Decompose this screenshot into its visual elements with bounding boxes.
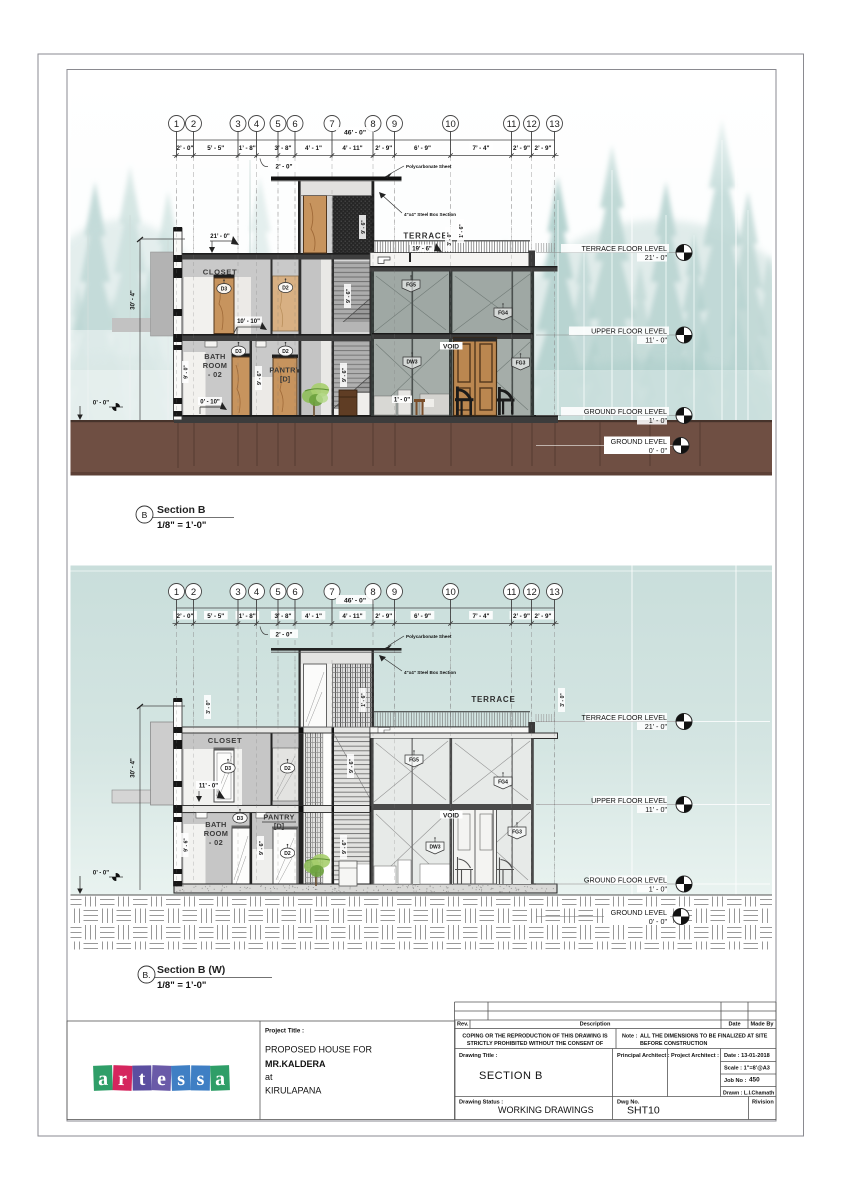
svg-text:Drawing Status :: Drawing Status : — [459, 1100, 503, 1106]
svg-text:4"x4" Steel Box Section: 4"x4" Steel Box Section — [404, 670, 456, 675]
svg-text:Project Title :: Project Title : — [265, 1028, 304, 1035]
svg-text:2’ - 0": 2’ - 0" — [177, 613, 194, 620]
svg-text:Drawing Title :: Drawing Title : — [459, 1053, 498, 1059]
svg-text:Drawn : L.I.Chamath: Drawn : L.I.Chamath — [723, 1091, 774, 1097]
svg-text:10: 10 — [445, 119, 456, 130]
svg-text:4: 4 — [254, 587, 259, 598]
svg-text:1’ - 0": 1’ - 0" — [649, 416, 668, 425]
svg-text:1: 1 — [174, 119, 179, 130]
svg-text:CLOSET: CLOSET — [208, 736, 242, 745]
svg-text:FG3: FG3 — [512, 830, 522, 836]
svg-text:DW3: DW3 — [406, 360, 417, 366]
svg-text:2’ - 9": 2’ - 9" — [375, 145, 392, 152]
svg-text:5’ - 5": 5’ - 5" — [207, 613, 224, 620]
svg-text:9: 9 — [392, 587, 397, 598]
svg-text:Section B (W): Section B (W) — [157, 964, 225, 976]
svg-text:GROUND LEVEL: GROUND LEVEL — [611, 908, 667, 917]
svg-text:Note :: Note : — [622, 1034, 637, 1040]
svg-text:9: 9 — [392, 119, 397, 130]
svg-text:2’ - 0": 2’ - 0" — [177, 145, 194, 152]
svg-text:4’ - 11": 4’ - 11" — [342, 613, 362, 620]
svg-text:4’ - 1": 4’ - 1" — [305, 613, 322, 620]
svg-text:t: t — [138, 1068, 145, 1090]
svg-text:ROOM: ROOM — [203, 361, 228, 370]
svg-text:B.: B. — [142, 970, 150, 980]
svg-text:2’ - 9": 2’ - 9" — [513, 145, 530, 152]
svg-text:46’ - 0": 46’ - 0" — [344, 130, 366, 137]
svg-text:Description: Description — [580, 1022, 611, 1028]
svg-text:- 02: - 02 — [208, 370, 222, 379]
svg-text:BATH: BATH — [205, 820, 227, 829]
svg-text:Made By: Made By — [750, 1022, 774, 1028]
svg-text:2: 2 — [191, 587, 196, 598]
svg-text:r: r — [118, 1068, 128, 1090]
svg-text:11’ - 0": 11’ - 0" — [645, 336, 667, 345]
svg-text:5: 5 — [275, 119, 280, 130]
svg-text:11: 11 — [507, 119, 517, 130]
svg-text:12: 12 — [526, 587, 537, 598]
svg-text:DW3: DW3 — [429, 845, 440, 851]
svg-text:FG3: FG3 — [516, 361, 526, 367]
svg-text:SECTION B: SECTION B — [479, 1070, 543, 1082]
svg-text:5: 5 — [275, 587, 280, 598]
svg-text:1’ - 8": 1’ - 8" — [239, 613, 256, 620]
svg-text:SHT10: SHT10 — [627, 1105, 660, 1117]
svg-text:at: at — [265, 1072, 273, 1082]
svg-text:PROPOSED HOUSE FOR: PROPOSED HOUSE FOR — [265, 1045, 373, 1055]
svg-text:3: 3 — [235, 587, 240, 598]
svg-text:10’ - 10": 10’ - 10" — [237, 319, 260, 325]
svg-text:11: 11 — [507, 587, 517, 598]
svg-text:GROUND FLOOR LEVEL: GROUND FLOOR LEVEL — [584, 876, 667, 885]
svg-text:0’ - 10": 0’ - 10" — [200, 400, 220, 406]
svg-text:0’ - 0": 0’ - 0" — [93, 871, 109, 877]
svg-text:TERRACE: TERRACE — [403, 232, 447, 241]
svg-text:ALL THE DIMENSIONS TO BE FINAL: ALL THE DIMENSIONS TO BE FINALIZED AT SI… — [640, 1034, 768, 1040]
svg-text:11’ - 0": 11’ - 0" — [645, 805, 667, 814]
svg-text:3’ - 0": 3’ - 0" — [206, 700, 212, 714]
svg-text:7’ - 4": 7’ - 4" — [473, 145, 490, 152]
svg-text:13: 13 — [549, 119, 560, 130]
svg-text:30’ - 4": 30’ - 4" — [131, 290, 137, 310]
svg-text:CLOSET: CLOSET — [203, 268, 237, 277]
svg-text:9’ - 6": 9’ - 6" — [342, 367, 348, 382]
svg-text:1’ - 6": 1’ - 6" — [459, 224, 465, 238]
svg-text:4’ - 1": 4’ - 1" — [305, 145, 322, 152]
svg-text:3’ - 0": 3’ - 0" — [447, 232, 453, 246]
svg-text:30’ - 4": 30’ - 4" — [131, 758, 137, 778]
svg-text:UPPER FLOOR LEVEL: UPPER FLOOR LEVEL — [591, 796, 667, 805]
svg-text:3’ - 0": 3’ - 0" — [560, 693, 566, 707]
svg-text:s: s — [177, 1068, 186, 1090]
svg-text:5’ - 5": 5’ - 5" — [207, 145, 224, 152]
svg-text:Scale : 1"=8’@A3: Scale : 1"=8’@A3 — [724, 1066, 770, 1072]
svg-text:21’ - 0": 21’ - 0" — [645, 722, 668, 731]
svg-text:6’ - 9": 6’ - 9" — [414, 613, 431, 620]
svg-text:9’ - 6": 9’ - 6" — [259, 840, 265, 855]
svg-text:B: B — [142, 510, 148, 520]
svg-text:9’ - 6": 9’ - 6" — [257, 370, 263, 385]
svg-text:4: 4 — [254, 119, 259, 130]
svg-text:9’ - 6": 9’ - 6" — [361, 220, 367, 234]
svg-text:0’ - 0": 0’ - 0" — [649, 917, 668, 926]
svg-text:TERRACE FLOOR LEVEL: TERRACE FLOOR LEVEL — [582, 244, 667, 253]
svg-text:s: s — [196, 1068, 204, 1090]
svg-text:7’ - 4": 7’ - 4" — [473, 613, 490, 620]
svg-text:3’ - 8": 3’ - 8" — [275, 613, 292, 620]
svg-text:Date: Date — [728, 1022, 740, 1028]
svg-text:GROUND LEVEL: GROUND LEVEL — [611, 437, 667, 446]
svg-text:9’ - 6": 9’ - 6" — [346, 288, 352, 303]
svg-text:1/8" = 1’-0": 1/8" = 1’-0" — [157, 520, 206, 531]
svg-text:MR.KALDERA: MR.KALDERA — [265, 1059, 326, 1069]
svg-text:1’ - 0": 1’ - 0" — [649, 885, 668, 894]
svg-text:D3: D3 — [225, 766, 232, 772]
svg-text:7: 7 — [329, 119, 334, 130]
svg-text:2’ - 9": 2’ - 9" — [535, 145, 552, 152]
svg-text:0’ - 0": 0’ - 0" — [93, 401, 109, 407]
svg-text:a: a — [98, 1068, 109, 1090]
svg-text:[D]: [D] — [280, 375, 291, 384]
svg-text:4’ - 11": 4’ - 11" — [342, 145, 362, 152]
svg-text:TERRACE: TERRACE — [471, 695, 515, 704]
svg-text:D2: D2 — [284, 851, 291, 857]
svg-text:D2: D2 — [282, 286, 289, 292]
svg-text:9’ - 6": 9’ - 6" — [184, 838, 190, 852]
svg-text:FG4: FG4 — [498, 311, 508, 317]
svg-text:11’ - 0": 11’ - 0" — [199, 784, 218, 790]
svg-text:19’ - 6": 19’ - 6" — [412, 247, 432, 253]
svg-text:2’ - 9": 2’ - 9" — [513, 613, 530, 620]
svg-text:12: 12 — [526, 119, 537, 130]
svg-text:1’ - 6": 1’ - 6" — [361, 693, 367, 707]
svg-text:[D]: [D] — [274, 822, 285, 831]
svg-text:2’ - 9": 2’ - 9" — [375, 613, 392, 620]
svg-text:FG5: FG5 — [406, 283, 416, 289]
svg-text:e: e — [157, 1068, 167, 1090]
svg-text:KIRULAPANA: KIRULAPANA — [265, 1086, 321, 1096]
svg-text:2: 2 — [191, 119, 196, 130]
svg-text:21’ - 0": 21’ - 0" — [645, 253, 668, 262]
svg-text:TERRACE FLOOR LEVEL: TERRACE FLOOR LEVEL — [582, 713, 667, 722]
svg-text:WORKING DRAWINGS: WORKING DRAWINGS — [498, 1105, 594, 1115]
svg-text:Section B: Section B — [157, 504, 206, 516]
svg-text:VOID: VOID — [443, 344, 459, 351]
svg-text:21’ - 0": 21’ - 0" — [210, 234, 230, 240]
svg-text:D3: D3 — [237, 816, 244, 822]
svg-text:Project Architect :: Project Architect : — [671, 1053, 719, 1059]
svg-text:13: 13 — [549, 587, 560, 598]
svg-text:D2: D2 — [284, 766, 291, 772]
svg-text:BATH: BATH — [204, 352, 226, 361]
svg-text:9’ - 0": 9’ - 0" — [184, 365, 190, 379]
svg-text:COPING OR THE REPRODUCTION OF: COPING OR THE REPRODUCTION OF THIS DRAWI… — [462, 1034, 608, 1040]
svg-text:2’ - 9": 2’ - 9" — [535, 613, 552, 620]
svg-text:VOID: VOID — [443, 813, 459, 820]
svg-text:1’ - 8": 1’ - 8" — [239, 145, 256, 152]
svg-text:GROUND FLOOR LEVEL: GROUND FLOOR LEVEL — [584, 407, 667, 416]
svg-text:D3: D3 — [235, 349, 242, 355]
svg-text:2’ - 0": 2’ - 0" — [276, 164, 293, 171]
svg-text:0’ - 0": 0’ - 0" — [649, 446, 668, 455]
svg-text:9’ - 6": 9’ - 6" — [342, 839, 348, 854]
svg-text:Job No :: Job No : — [724, 1078, 747, 1084]
svg-text:- 02: - 02 — [209, 838, 223, 847]
svg-text:1’ - 0": 1’ - 0" — [394, 398, 410, 404]
svg-text:2’ - 0": 2’ - 0" — [276, 632, 293, 639]
svg-text:7: 7 — [329, 587, 334, 598]
svg-text:BEFORE CONSTRUCTION: BEFORE CONSTRUCTION — [640, 1041, 707, 1047]
svg-text:STRICTLY PROHIBITED WITHOUT TH: STRICTLY PROHIBITED WITHOUT THE CONSENT … — [467, 1041, 604, 1047]
svg-text:6: 6 — [292, 587, 297, 598]
svg-text:3: 3 — [235, 119, 240, 130]
svg-text:Date : 13-01-2018: Date : 13-01-2018 — [724, 1053, 770, 1059]
svg-text:4"x4" Steel Box Section: 4"x4" Steel Box Section — [404, 212, 456, 217]
svg-text:10: 10 — [445, 587, 456, 598]
svg-text:1: 1 — [174, 587, 179, 598]
svg-text:Principal Architect :: Principal Architect : — [617, 1053, 670, 1059]
svg-text:3’ - 8": 3’ - 8" — [275, 145, 292, 152]
svg-text:UPPER FLOOR LEVEL: UPPER FLOOR LEVEL — [591, 327, 667, 336]
svg-text:Rev.: Rev. — [457, 1022, 469, 1028]
svg-text:PANTRY: PANTRY — [263, 813, 294, 822]
svg-text:450: 450 — [749, 1077, 760, 1084]
svg-text:D3: D3 — [221, 287, 228, 293]
svg-text:6’ - 9": 6’ - 9" — [414, 145, 431, 152]
svg-text:PANTRY: PANTRY — [269, 366, 300, 375]
svg-text:ROOM: ROOM — [204, 829, 229, 838]
svg-text:D2: D2 — [282, 349, 289, 355]
svg-text:Polycarbonate Sheet: Polycarbonate Sheet — [406, 634, 452, 639]
svg-text:FG5: FG5 — [409, 758, 419, 764]
svg-text:Polycarbonate Sheet: Polycarbonate Sheet — [406, 164, 452, 169]
svg-text:FG4: FG4 — [498, 780, 508, 786]
svg-text:46’ - 0": 46’ - 0" — [344, 598, 366, 605]
svg-text:Rivision: Rivision — [752, 1100, 774, 1106]
svg-text:a: a — [215, 1068, 226, 1090]
svg-text:6: 6 — [292, 119, 297, 130]
svg-text:1/8" = 1’-0": 1/8" = 1’-0" — [157, 980, 206, 991]
svg-text:9’ - 6": 9’ - 6" — [349, 758, 355, 773]
